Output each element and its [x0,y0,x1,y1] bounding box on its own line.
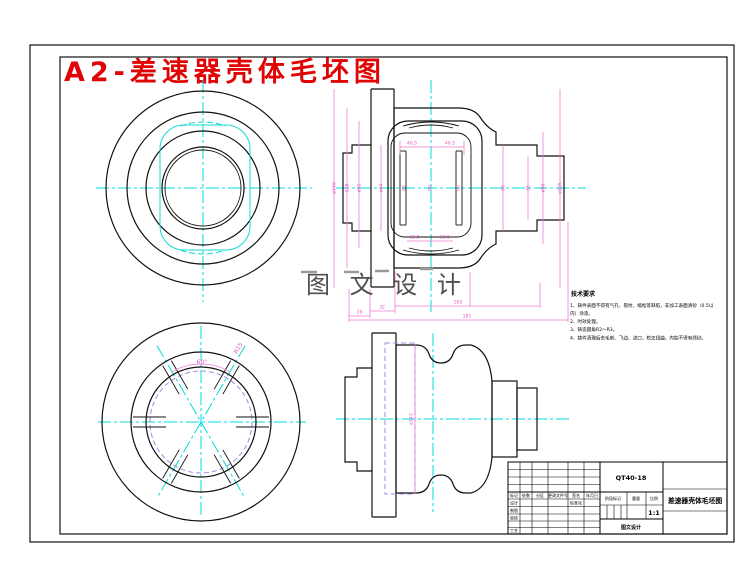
revision-grid: 标记 处数 分区 更改文件号 签名 年月日 设计 制图 审核 工艺 标准化 [508,462,600,534]
dim-label: ø143 [409,413,415,425]
drawing-name-cell: 差速器壳体毛坯图 [663,489,727,511]
header-cell: 标记 [510,492,518,498]
dim-label: ø146 [332,182,338,194]
note-line: 3、铸造圆角R2～R3。 [570,326,617,333]
window-arc-bottom2 [409,248,453,251]
header-cell: 更改文件号 [548,492,568,498]
row-label: 设计 [510,500,518,506]
note-line: 2、时效处理。 [570,318,601,325]
dim-label: 19 [357,310,363,316]
dim-label: 181 [463,314,472,320]
row-label: 工艺 [510,528,518,533]
drawing-name: 差速器壳体毛坯图 [668,496,723,505]
notes-title: 技术要求 [571,290,596,298]
dim-label: 65 [402,185,408,191]
row-label: 审核 [510,515,518,521]
wheel-view: 60° R15 [98,323,306,521]
dim-label: 118 [345,184,351,193]
weight-label: 重量 [632,495,640,501]
side-view: ø143 [336,333,572,517]
dim-label: ø90 [541,184,547,193]
header-cell: 分区 [536,492,544,498]
stage-label: 阶段标记 [605,495,621,501]
note-line: 内）涂漆。 [570,310,593,317]
drawing-sheet: A2-差速器壳体毛坯图 [0,0,748,584]
cad-canvas: A2-差速器壳体毛坯图 [0,0,748,584]
scale-value: 1:1 [648,509,660,517]
row-label: 制图 [510,507,518,513]
dim-label: ø64 [379,184,385,193]
scale-label: 比例 [650,495,658,501]
header-cell: 年月日 [586,492,598,498]
header-cell: 处数 [522,492,530,498]
material-scale-cells: QT40-18 阶段标记 重量 比例 1:1 图文设计 [600,474,663,531]
dim-label: 60 [501,185,507,191]
page-title: A2-差速器壳体毛坯图 [64,56,386,88]
dim-label: 22.5 [410,235,420,241]
dim-label: 22.5 [440,235,450,241]
dim-label: 40.5 [445,141,455,147]
company: 图文设计 [621,524,641,531]
dim-label: ø92 [357,184,363,193]
dim-label: R15 [233,341,245,355]
dim-label: 32 [379,305,385,311]
title-block: 标记 处数 分区 更改文件号 签名 年月日 设计 制图 审核 工艺 标准化 QT… [508,462,727,534]
dim-label: 60° [197,359,208,366]
dim-label: 40.5 [407,141,417,147]
std-label: 标准化 [570,500,582,506]
watermark: 图 文 设 计 [301,269,467,299]
note-line: 4、铸件清理后去毛刺、飞边、浇口，校正扭曲，内腔不得有残砂。 [570,335,706,342]
watermark-text: 图 文 设 计 [306,271,467,299]
dim-label: 65 [456,185,462,191]
technical-notes: 技术要求 1、铸件表面不得有气孔、裂纹、缩松等缺陷，非加工表面清砂（0.5以 内… [570,290,714,342]
dim-label: ø105 [558,182,564,194]
material: QT40-18 [616,474,647,482]
front-view [96,80,312,302]
note-line: 1、铸件表面不得有气孔、裂纹、缩松等缺陷，非加工表面清砂（0.5以 [570,302,714,309]
dim-label: 35 [526,185,532,191]
dim-label: 165 [454,300,463,306]
dim-label: 80 [428,185,434,191]
header-cell: 签名 [572,492,580,498]
